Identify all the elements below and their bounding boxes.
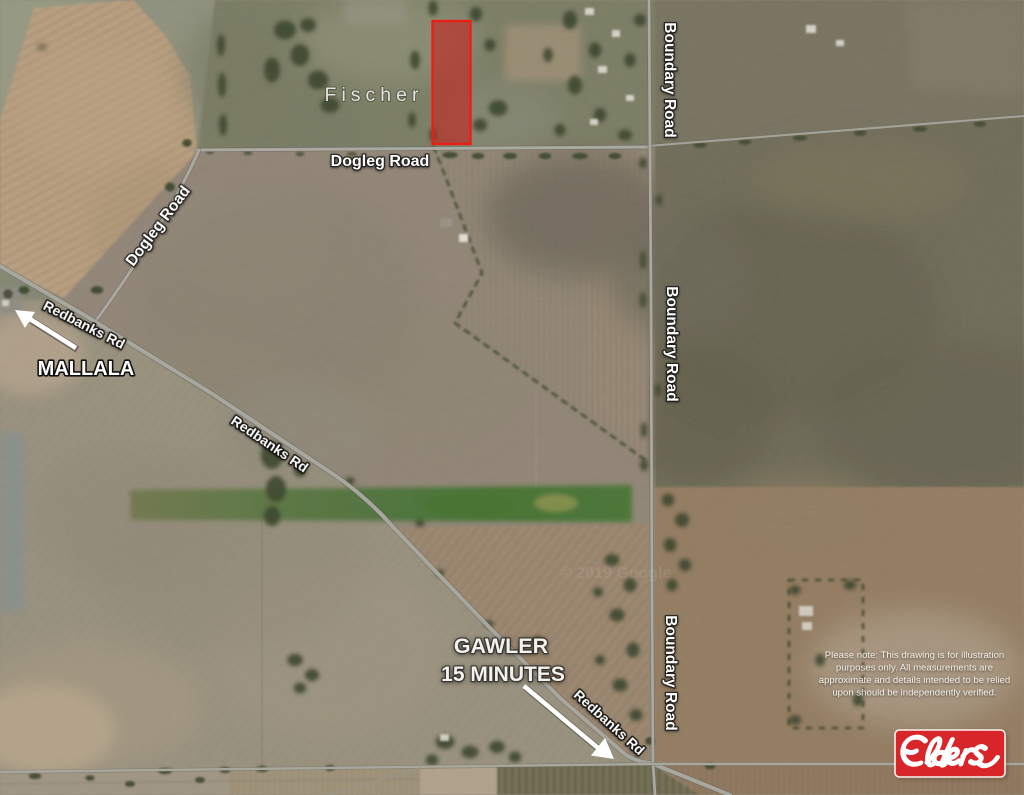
svg-text:Please note: This drawing is f: Please note: This drawing is for illustr…: [825, 650, 1005, 661]
svg-text:© 2019 Google: © 2019 Google: [560, 565, 671, 582]
svg-text:MALLALA: MALLALA: [38, 358, 135, 380]
svg-text:upon should be independently v: upon should be independently verified.: [832, 688, 996, 699]
svg-text:GAWLER: GAWLER: [454, 634, 549, 658]
svg-text:purposes only. All measurement: purposes only. All measurements are: [836, 663, 993, 674]
svg-text:15 MINUTES: 15 MINUTES: [441, 663, 565, 686]
svg-text:Boundary Road: Boundary Road: [663, 286, 680, 401]
svg-text:Boundary Road: Boundary Road: [662, 615, 679, 730]
svg-text:Fischer: Fischer: [325, 84, 424, 106]
svg-text:Dogleg Road: Dogleg Road: [331, 153, 430, 170]
svg-text:approximate and details intend: approximate and details intended to be r…: [819, 675, 1010, 686]
svg-text:Boundary Road: Boundary Road: [661, 22, 678, 137]
